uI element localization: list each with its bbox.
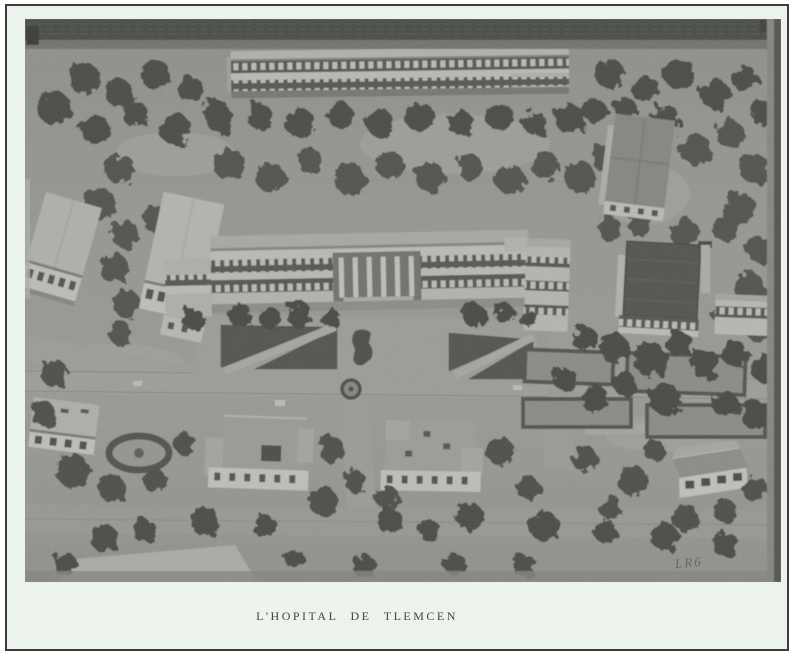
grain-light-overlay [25,19,781,582]
handwritten-mark: LR6 [674,554,703,572]
aerial-photo [25,19,781,582]
scanned-book-page: LR6 L'HOPITAL DE TLEMCEN [0,0,800,664]
plate-frame: LR6 [5,4,789,651]
plate-caption: L'HOPITAL DE TLEMCEN [157,609,557,624]
aerial-photo-illustration [25,19,781,582]
